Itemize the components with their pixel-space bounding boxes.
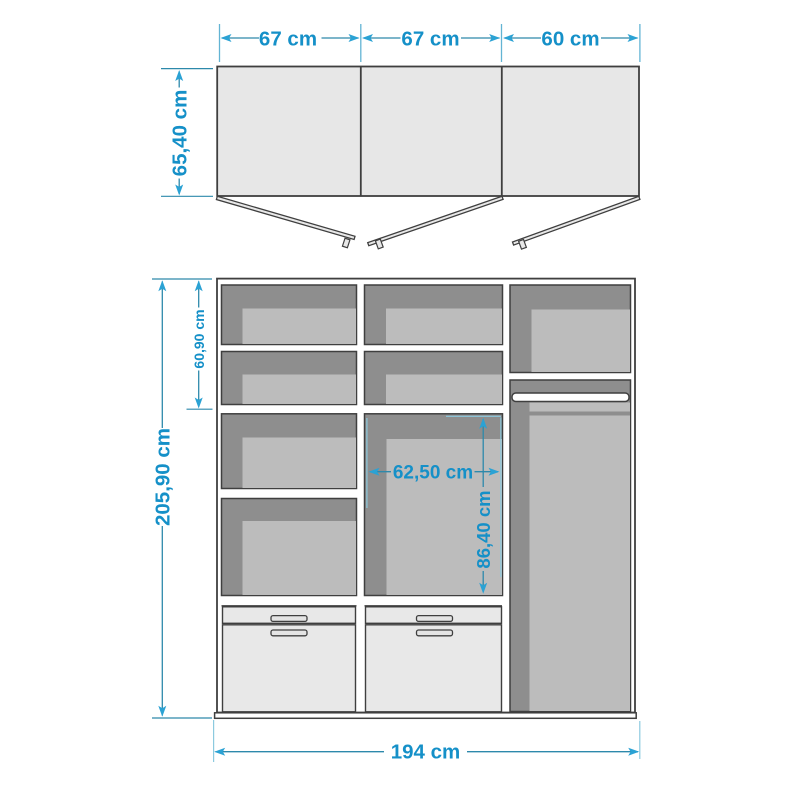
svg-text:60,90 cm: 60,90 cm — [191, 309, 207, 368]
svg-text:65,40 cm: 65,40 cm — [168, 90, 191, 177]
svg-text:60 cm: 60 cm — [541, 27, 599, 50]
svg-text:194 cm: 194 cm — [391, 741, 461, 764]
svg-text:86,40 cm: 86,40 cm — [473, 490, 494, 568]
svg-text:205,90 cm: 205,90 cm — [152, 428, 175, 526]
svg-text:67 cm: 67 cm — [401, 27, 459, 50]
svg-text:62,50 cm: 62,50 cm — [393, 463, 473, 484]
svg-text:67 cm: 67 cm — [259, 27, 317, 50]
